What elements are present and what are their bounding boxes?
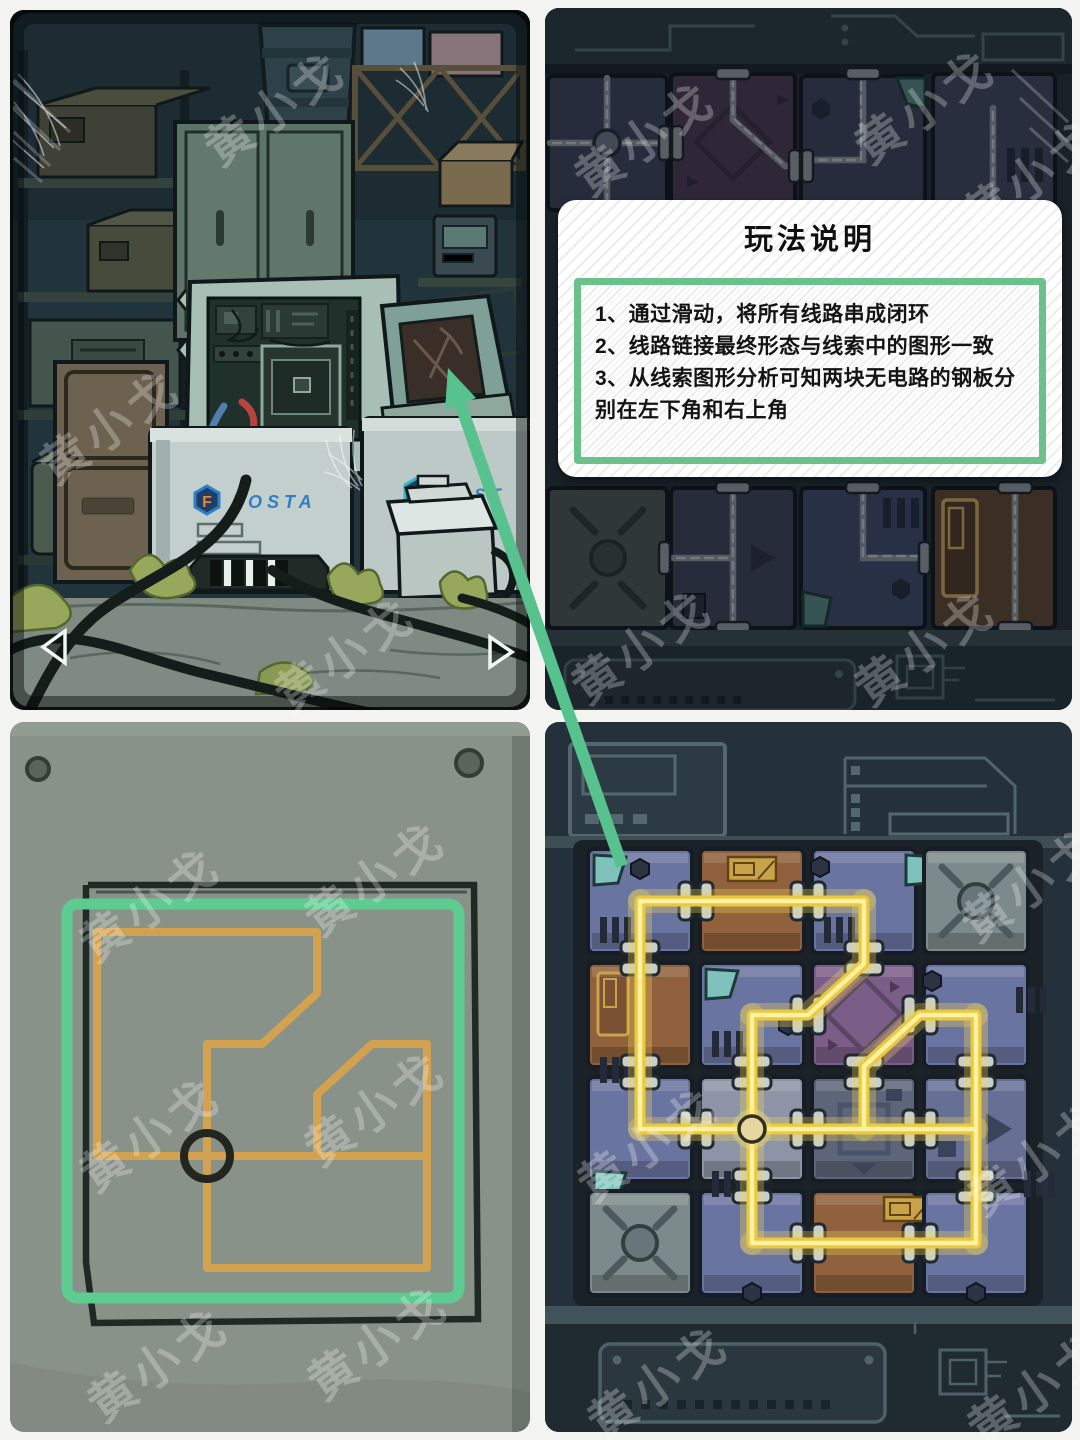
pin-hole [27,758,49,780]
vent [1024,1171,1031,1197]
instruction-line-3: 3、从线索图形分析可知两块无电路的钢板分别在左下角和右上角 [595,363,1027,427]
vent [724,1171,731,1197]
instruction-line-1: 1、通过滑动，将所有线路串成闭环 [595,299,1027,331]
svg-text:OSTA: OSTA [248,492,317,512]
vent [1028,987,1035,1013]
wire-ball-joint [739,1116,765,1142]
hex-bolt [743,1283,761,1303]
svg-text:F: F [202,494,212,511]
vent [712,1171,719,1197]
instructions-box: 1、通过滑动，将所有线路串成闭环 2、线路链接最终形态与线索中的图形一致 3、从… [574,278,1046,464]
instructions-modal[interactable]: 玩法说明 1、通过滑动，将所有线路串成闭环 2、线路链接最终形态与线索中的图形一… [558,200,1062,477]
vent [1036,1171,1043,1197]
barrel [260,25,355,130]
solved-puzzle-panel [545,722,1072,1432]
door-hatch [598,973,628,1035]
machine-base-bottom [545,1306,1072,1432]
vent [724,1031,731,1057]
puzzle-plate-r1c4[interactable] [924,849,1028,953]
clue-paper-panel [10,722,530,1432]
walkthrough-collage: { "watermark": { "text": "黄小戈", "spots":… [0,0,1080,1440]
gold-plaque [728,857,776,881]
vent [612,917,619,943]
hex-bolt [923,971,941,991]
instruction-line-2: 2、线路链接最终形态与线索中的图形一致 [595,331,1027,363]
pin-hole [456,750,482,776]
puzzle-grid [588,849,1055,1303]
modal-title: 玩法说明 [558,200,1062,258]
vent [612,1057,619,1083]
vent [824,917,831,943]
vent [712,1031,719,1057]
vent [1040,987,1047,1013]
vent [836,917,843,943]
vent [1016,987,1023,1013]
puzzle-plate-r4c1[interactable] [588,1191,692,1295]
hex-bolt [967,1283,985,1303]
scene-panel: F F OSTA F F OST [10,10,530,710]
hex-bolt [811,857,829,877]
hex-bolt [631,859,649,879]
vent [1048,1171,1055,1197]
vent [600,1057,607,1083]
vent [600,917,607,943]
